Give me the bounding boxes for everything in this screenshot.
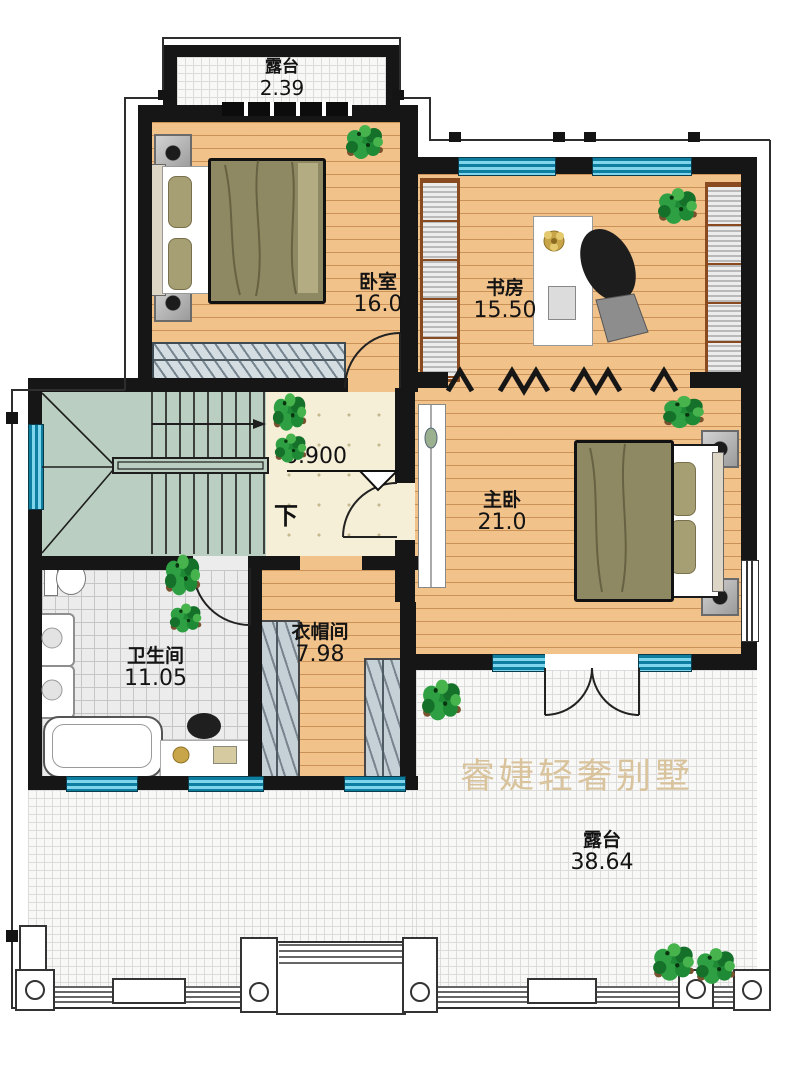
floor-plan: 露台 2.39 卧室 16.0 书房 15.50 6.900 下 主卧 21.0… [0, 0, 800, 1065]
vanity-flower-icon [173, 747, 189, 763]
open-partition-zigzag [448, 371, 676, 391]
terrace-step [113, 979, 185, 1003]
desk-chair [569, 220, 648, 342]
eave-outline [12, 38, 770, 1008]
terrace-door-right [592, 668, 639, 715]
vanity-chair [187, 713, 221, 739]
terrace-door-left [545, 668, 592, 715]
plan-linework [0, 0, 800, 1065]
plant-icon [653, 943, 694, 980]
plant-icon [170, 604, 201, 633]
desk-flower-icon [544, 231, 564, 251]
plant-icon [165, 555, 200, 596]
plant-icon [696, 948, 735, 984]
plant-icon [658, 188, 697, 224]
basin-bowl [42, 680, 62, 700]
terrace-step [528, 979, 596, 1003]
master-door [343, 483, 397, 537]
dresser-decor [425, 428, 437, 448]
bedroom-door [345, 333, 400, 388]
plant-icon [273, 393, 306, 430]
plant-icon [663, 396, 704, 428]
level-marker [287, 471, 397, 490]
plant-icon [346, 125, 383, 159]
staircase [42, 392, 268, 554]
blanket-texture [225, 160, 626, 592]
plant-icon [422, 680, 461, 721]
plant-icon [275, 434, 306, 463]
basin-bowl [42, 628, 62, 648]
plant-icons [165, 125, 735, 984]
bathroom-door [193, 568, 250, 625]
